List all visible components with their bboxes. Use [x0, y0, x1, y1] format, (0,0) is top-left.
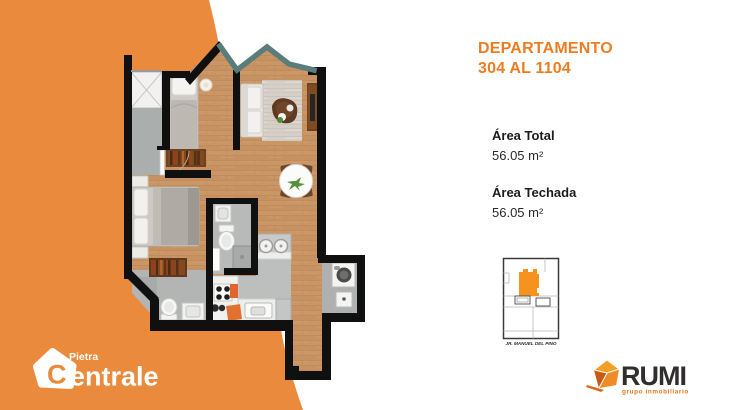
- svg-text:RUMI: RUMI: [621, 361, 686, 391]
- svg-text:C: C: [47, 360, 67, 390]
- svg-text:entrale: entrale: [70, 362, 159, 392]
- svg-text:grupo inmobiliario: grupo inmobiliario: [622, 389, 689, 396]
- svg-text:JR. MANUEL DEL PINO: JR. MANUEL DEL PINO: [506, 341, 557, 346]
